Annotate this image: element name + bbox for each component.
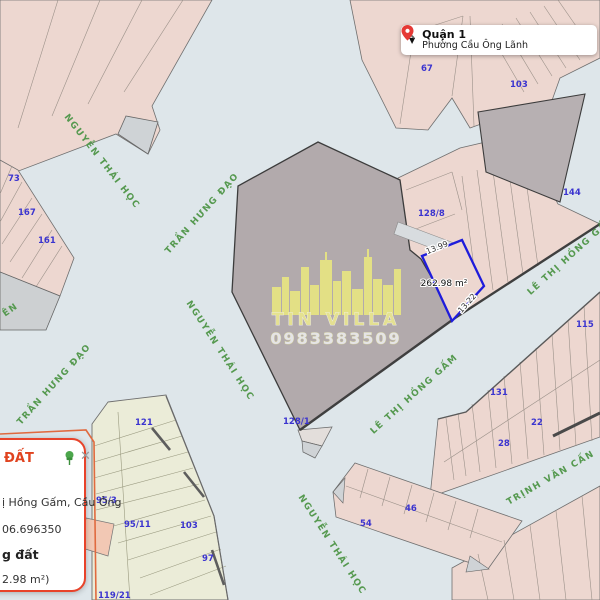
parcel-number: 103	[180, 521, 198, 531]
parcel-number: 22	[531, 418, 543, 428]
map-canvas[interactable]: 13.99 13.22 262.98 m² TIN VILLA 09833835…	[0, 0, 600, 600]
parcel-number: 115	[576, 320, 594, 330]
watermark-name: TIN VILLA	[272, 310, 400, 330]
panel-address-fragment: ị Hồng Gấm, Cầu Ông	[2, 496, 121, 509]
parcel-number: 119/21	[98, 591, 131, 600]
parcel-number: 46	[405, 504, 417, 514]
parcel-info-panel: ĐẤT ✕ ị Hồng Gấm, Cầu Ông 06.696350 g đấ…	[0, 438, 86, 592]
map-pin-icon[interactable]	[401, 25, 414, 41]
map-viewport: 13.99 13.22 262.98 m² TIN VILLA 09833835…	[0, 0, 600, 600]
parcel-number: 28	[498, 439, 510, 449]
parcel-number: 167	[18, 208, 36, 218]
panel-area-fragment: 2.98 m²)	[2, 573, 49, 586]
watermark-phone: 0983383509	[270, 329, 401, 348]
ward-label: Phường Cầu Ông Lãnh	[422, 41, 591, 51]
street-label: TRẦN HƯNG ĐẠO	[161, 169, 241, 256]
parcel-number: 131	[490, 388, 508, 398]
parcel-number: 121	[135, 418, 153, 428]
parcel-number: 95/11	[124, 520, 151, 530]
parcel-area-label: 262.98 m²	[421, 279, 468, 289]
close-icon[interactable]: ✕	[80, 449, 91, 464]
location-search-box[interactable]: ▼ Quận 1 Phường Cầu Ông Lãnh	[401, 25, 597, 55]
parcel-number: 73	[8, 174, 20, 184]
parcel-number: 161	[38, 236, 56, 246]
parcel-number: 128/1	[283, 417, 310, 427]
parcel-number: 97	[202, 554, 214, 564]
street-label: TRẦN HƯNG ĐẠO	[13, 340, 93, 427]
panel-title-fragment: ĐẤT	[4, 451, 34, 466]
parcel-number: 67	[421, 64, 433, 74]
parcel-number: 144	[563, 188, 581, 198]
location-selector[interactable]: Quận 1 Phường Cầu Ông Lãnh	[422, 29, 591, 52]
district-label: Quận 1	[422, 29, 591, 41]
parcel-number: 54	[360, 519, 372, 529]
panel-coordinate-fragment: 06.696350	[2, 523, 62, 536]
parcel-number: 103	[510, 80, 528, 90]
panel-landtype-fragment: g đất	[2, 547, 39, 562]
parcel-number: 128/8	[418, 209, 445, 219]
